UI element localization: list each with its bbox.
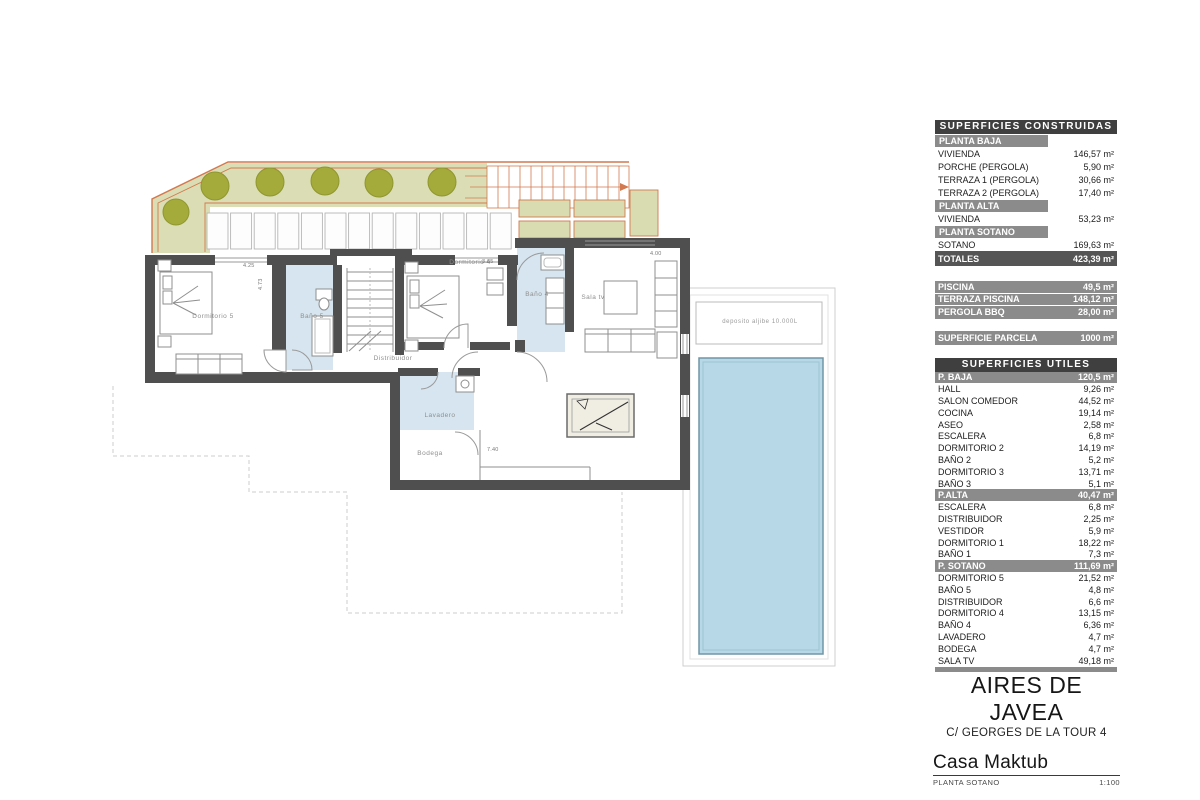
table-row: COCINA 19,14 m² bbox=[935, 407, 1117, 419]
row-label: BAÑO 4 bbox=[938, 620, 971, 630]
row-label: PLANTA SOTANO bbox=[935, 226, 1048, 238]
row-label: ASEO bbox=[938, 420, 963, 430]
row-value: 169,63 m² bbox=[1073, 240, 1114, 250]
room-label-dormitorio4: Dormitorio 4 bbox=[425, 259, 515, 266]
tree-icon bbox=[365, 169, 393, 197]
dimension-label: 4.25 bbox=[243, 263, 255, 269]
row-value: 4,7 m² bbox=[1088, 644, 1114, 654]
row-label: BAÑO 1 bbox=[938, 549, 971, 559]
table-row: VIVIENDA 146,57 m² bbox=[935, 147, 1117, 160]
dashed-footprint-outline bbox=[113, 386, 622, 613]
project-address: C/ GEORGES DE LA TOUR 4 bbox=[933, 727, 1120, 739]
row-label: LAVADERO bbox=[938, 632, 986, 642]
dimension-label: 7.40 bbox=[487, 447, 499, 453]
parcela-label: SUPERFICIE PARCELA bbox=[938, 333, 1037, 343]
table-row: VIVIENDA 53,23 m² bbox=[935, 212, 1117, 225]
row-label: BAÑO 5 bbox=[938, 585, 971, 595]
areas-panel: SUPERFICIES CONSTRUIDAS PLANTA BAJA VIVI… bbox=[935, 120, 1117, 672]
tree-icon bbox=[163, 199, 189, 225]
shelving-unit bbox=[655, 261, 677, 327]
table-row: PLANTA ALTA bbox=[935, 199, 1117, 212]
table-row: BAÑO 1 7,3 m² bbox=[935, 548, 1117, 560]
title-block: AIRES DE JAVEA C/ GEORGES DE LA TOUR 4 C… bbox=[933, 672, 1120, 787]
tree-icon bbox=[428, 168, 456, 196]
row-label: ESCALERA bbox=[938, 431, 986, 441]
table-row: TERRAZA 1 (PERGOLA) 30,66 m² bbox=[935, 173, 1117, 186]
row-value: 13,15 m² bbox=[1078, 608, 1114, 618]
row-label: DORMITORIO 3 bbox=[938, 467, 1004, 477]
table-row: BAÑO 4 6,36 m² bbox=[935, 619, 1117, 631]
dimension-label: 3.65 bbox=[482, 259, 494, 265]
row-value: 9,26 m² bbox=[1083, 384, 1114, 394]
row-label: PLANTA ALTA bbox=[935, 200, 1048, 212]
row-value: 6,8 m² bbox=[1088, 431, 1114, 441]
table-header: SUPERFICIES UTILES bbox=[935, 358, 1117, 372]
row-value: 7,3 m² bbox=[1088, 549, 1114, 559]
row-label: VESTIDOR bbox=[938, 526, 984, 536]
row-label: DORMITORIO 4 bbox=[938, 608, 1004, 618]
closet bbox=[487, 283, 503, 295]
row-label: TERRAZA 2 (PERGOLA) bbox=[938, 188, 1039, 198]
row-value: 120,5 m² bbox=[1078, 372, 1114, 382]
table-row: ESCALERA 6,8 m² bbox=[935, 501, 1117, 513]
row-value: 44,52 m² bbox=[1078, 396, 1114, 406]
bed-icon bbox=[405, 262, 459, 351]
table-row: PLANTA BAJA bbox=[935, 134, 1117, 147]
row-value: 4,7 m² bbox=[1088, 632, 1114, 642]
table-row: BAÑO 2 5,2 m² bbox=[935, 454, 1117, 466]
row-label: PLANTA BAJA bbox=[935, 135, 1048, 147]
row-value: 49,5 m² bbox=[1083, 282, 1114, 292]
row-label: TERRAZA PISCINA bbox=[938, 294, 1020, 304]
pool-terrace bbox=[683, 288, 835, 666]
table-row: DISTRIBUIDOR 6,6 m² bbox=[935, 596, 1117, 608]
row-label: TERRAZA 1 (PERGOLA) bbox=[938, 175, 1039, 185]
table-row: SALA TV 49,18 m² bbox=[935, 655, 1117, 667]
table-row: P. SOTANO 111,69 m² bbox=[935, 560, 1117, 572]
bed-icon bbox=[158, 260, 212, 347]
row-value: 14,19 m² bbox=[1078, 443, 1114, 453]
scale-value: 1:100 bbox=[1099, 778, 1120, 787]
table-row: DORMITORIO 1 18,22 m² bbox=[935, 537, 1117, 549]
table-row: DORMITORIO 4 13,15 m² bbox=[935, 607, 1117, 619]
table-row: BAÑO 5 4,8 m² bbox=[935, 584, 1117, 596]
row-value: 21,52 m² bbox=[1078, 573, 1114, 583]
row-label: DORMITORIO 2 bbox=[938, 443, 1004, 453]
room-label-sala-tv: Sala tv bbox=[563, 294, 623, 301]
row-value: 13,71 m² bbox=[1078, 467, 1114, 477]
room-label-bano4: Baño 4 bbox=[507, 291, 567, 298]
room-label-lavadero: Lavadero bbox=[405, 412, 475, 419]
stairs-icon bbox=[347, 268, 393, 352]
row-label: DISTRIBUIDOR bbox=[938, 597, 1003, 607]
table-row: DORMITORIO 5 21,52 m² bbox=[935, 572, 1117, 584]
piscina-summary-block: PISCINA 49,5 m² TERRAZA PISCINA 148,12 m… bbox=[935, 281, 1117, 319]
pool bbox=[699, 358, 823, 654]
row-label: BAÑO 2 bbox=[938, 455, 971, 465]
row-label: BODEGA bbox=[938, 644, 977, 654]
row-label: DORMITORIO 1 bbox=[938, 538, 1004, 548]
parcela-value: 1000 m² bbox=[1080, 333, 1114, 343]
table-row: TOTALES 423,39 m² bbox=[935, 251, 1117, 266]
row-value: 111,69 m² bbox=[1074, 561, 1114, 571]
table-row: PERGOLA BBQ 28,00 m² bbox=[935, 306, 1117, 319]
row-value: 6,8 m² bbox=[1088, 502, 1114, 512]
row-label: P. SOTANO bbox=[938, 561, 986, 571]
table-row: HALL 9,26 m² bbox=[935, 383, 1117, 395]
row-label: PISCINA bbox=[938, 282, 975, 292]
table-row: BODEGA 4,7 m² bbox=[935, 643, 1117, 655]
table-row: BAÑO 3 5,1 m² bbox=[935, 478, 1117, 490]
row-label: TOTALES bbox=[938, 254, 979, 264]
sofa-icon bbox=[585, 329, 655, 352]
deposito-label: deposito aljibe 10.000L bbox=[697, 319, 823, 325]
row-value: 5,9 m² bbox=[1088, 526, 1114, 536]
row-value: 4,8 m² bbox=[1088, 585, 1114, 595]
drawing-sheet: Dormitorio 5 Baño 5 Dormitorio 4 Baño 4 … bbox=[0, 0, 1200, 800]
row-label: HALL bbox=[938, 384, 961, 394]
row-label: VIVIENDA bbox=[938, 149, 980, 159]
row-label: PERGOLA BBQ bbox=[938, 307, 1005, 317]
table-row: LAVADERO 4,7 m² bbox=[935, 631, 1117, 643]
dimension-label: 4.73 bbox=[258, 278, 264, 290]
sofa-icon bbox=[176, 354, 242, 374]
table-row: SALON COMEDOR 44,52 m² bbox=[935, 395, 1117, 407]
table-row: PISCINA 49,5 m² bbox=[935, 281, 1117, 294]
row-value: 18,22 m² bbox=[1078, 538, 1114, 548]
table-row: P.ALTA 40,47 m² bbox=[935, 489, 1117, 501]
table-row: ASEO 2,58 m² bbox=[935, 419, 1117, 431]
row-label: BAÑO 3 bbox=[938, 479, 971, 489]
table-row: TERRAZA PISCINA 148,12 m² bbox=[935, 294, 1117, 307]
plan-name: Casa Maktub bbox=[933, 752, 1120, 774]
row-value: 53,23 m² bbox=[1078, 214, 1114, 224]
row-value: 146,57 m² bbox=[1073, 149, 1114, 159]
superficies-utiles-table: SUPERFICIES UTILES P. BAJA 120,5 m² HALL… bbox=[935, 358, 1117, 673]
room-label-bano5: Baño 5 bbox=[282, 313, 342, 320]
row-label: PORCHE (PERGOLA) bbox=[938, 162, 1029, 172]
tree-icon bbox=[201, 172, 229, 200]
dimension-label: 4.00 bbox=[650, 251, 662, 257]
room-label-bodega: Bodega bbox=[395, 450, 465, 457]
table-row: DORMITORIO 2 14,19 m² bbox=[935, 442, 1117, 454]
tree-icon bbox=[311, 167, 339, 195]
table-header: SUPERFICIES CONSTRUIDAS bbox=[935, 120, 1117, 134]
row-value: 6,36 m² bbox=[1083, 620, 1114, 630]
room-label-distribuidor: Distribuidor bbox=[353, 355, 433, 362]
table-row: ESCALERA 6,8 m² bbox=[935, 430, 1117, 442]
table-row: VESTIDOR 5,9 m² bbox=[935, 525, 1117, 537]
row-label: VIVIENDA bbox=[938, 214, 980, 224]
table-row: TERRAZA 2 (PERGOLA) 17,40 m² bbox=[935, 186, 1117, 199]
table-row: DISTRIBUIDOR 2,25 m² bbox=[935, 513, 1117, 525]
row-label: SALON COMEDOR bbox=[938, 396, 1018, 406]
superficies-construidas-table: SUPERFICIES CONSTRUIDAS PLANTA BAJA VIVI… bbox=[935, 120, 1117, 266]
table-row: DORMITORIO 3 13,71 m² bbox=[935, 466, 1117, 478]
row-label: SALA TV bbox=[938, 656, 974, 666]
row-value: 5,90 m² bbox=[1083, 162, 1114, 172]
table-row: P. BAJA 120,5 m² bbox=[935, 372, 1117, 384]
sheet-name: PLANTA SOTANO bbox=[933, 778, 1000, 787]
row-value: 2,25 m² bbox=[1083, 514, 1114, 524]
table-row: SOTANO 169,63 m² bbox=[935, 238, 1117, 251]
vanity bbox=[546, 278, 564, 324]
row-value: 28,00 m² bbox=[1078, 307, 1114, 317]
room-label-dormitorio5: Dormitorio 5 bbox=[168, 313, 258, 320]
row-label: DISTRIBUIDOR bbox=[938, 514, 1003, 524]
shelving-unit bbox=[657, 332, 677, 358]
row-value: 40,47 m² bbox=[1078, 490, 1114, 500]
washing-machine-icon bbox=[456, 376, 474, 392]
billiard-table-icon bbox=[567, 394, 634, 437]
row-value: 148,12 m² bbox=[1073, 294, 1114, 304]
row-label: COCINA bbox=[938, 408, 973, 418]
row-label: SOTANO bbox=[938, 240, 975, 250]
row-label: P. BAJA bbox=[938, 372, 972, 382]
pergola-slats bbox=[207, 213, 511, 249]
row-label: DORMITORIO 5 bbox=[938, 573, 1004, 583]
row-value: 423,39 m² bbox=[1073, 254, 1114, 264]
row-value: 2,58 m² bbox=[1083, 420, 1114, 430]
row-value: 5,2 m² bbox=[1088, 455, 1114, 465]
row-value: 5,1 m² bbox=[1088, 479, 1114, 489]
table-row: PORCHE (PERGOLA) 5,90 m² bbox=[935, 160, 1117, 173]
row-value: 49,18 m² bbox=[1078, 656, 1114, 666]
row-label: ESCALERA bbox=[938, 502, 986, 512]
row-value: 19,14 m² bbox=[1078, 408, 1114, 418]
project-title: AIRES DE JAVEA bbox=[933, 672, 1120, 726]
tree-icon bbox=[256, 168, 284, 196]
table-row: PLANTA SOTANO bbox=[935, 225, 1117, 238]
closet bbox=[487, 268, 503, 280]
parcela-row: SUPERFICIE PARCELA 1000 m² bbox=[935, 331, 1117, 345]
row-value: 30,66 m² bbox=[1078, 175, 1114, 185]
row-label: P.ALTA bbox=[938, 490, 968, 500]
row-value: 17,40 m² bbox=[1078, 188, 1114, 198]
row-value: 6,6 m² bbox=[1088, 597, 1114, 607]
